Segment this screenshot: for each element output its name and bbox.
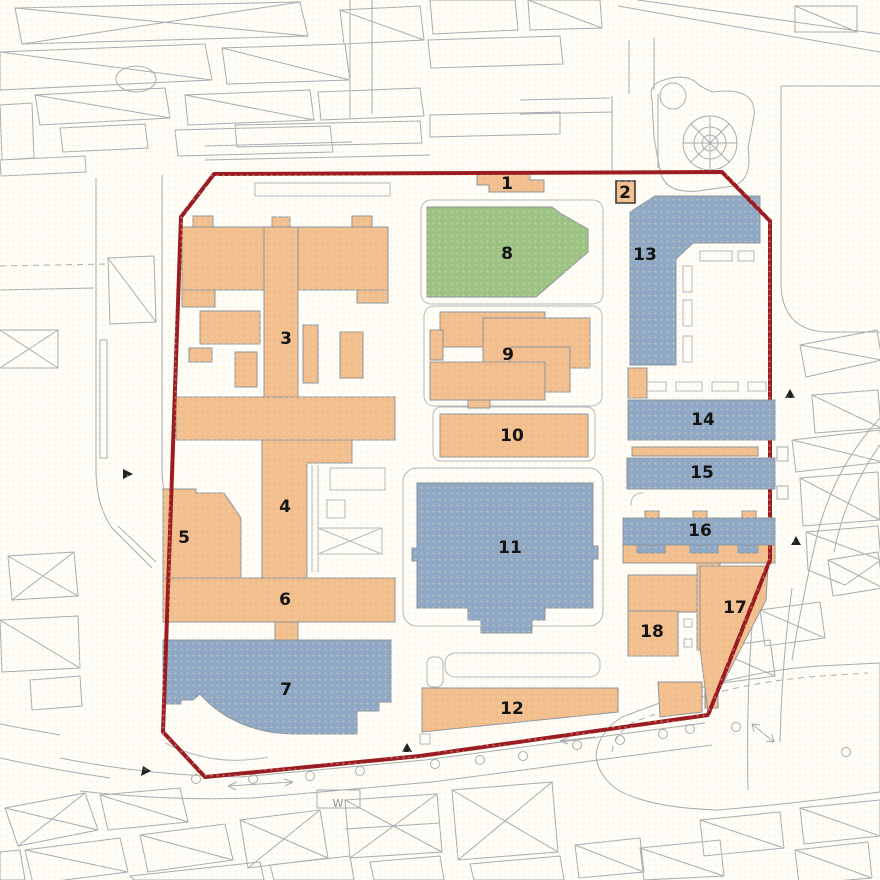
building-label-11: 11 [498,538,522,558]
building-label-10: 10 [500,426,524,446]
building-label-4: 4 [279,497,291,517]
site-plan-svg: 123456789101112131415161718 W [0,0,880,880]
site-plan: 123456789101112131415161718 W [0,0,880,880]
building-label-5: 5 [178,528,190,548]
dot-texture-overlay [0,0,880,880]
building-label-1: 1 [501,174,513,194]
building-label-18: 18 [640,622,664,642]
building-label-13: 13 [633,245,657,265]
building-label-17: 17 [723,598,747,618]
building-label-7: 7 [280,680,292,700]
building-label-15: 15 [690,463,714,483]
building-label-3: 3 [280,329,292,349]
building-label-8: 8 [501,244,513,264]
building-label-14: 14 [691,410,715,430]
building-label-9: 9 [502,345,514,365]
building-label-16: 16 [688,521,712,541]
building-label-12: 12 [500,699,524,719]
building-label-2: 2 [619,183,631,203]
building-label-6: 6 [279,590,291,610]
context-label-w: W [333,797,344,810]
